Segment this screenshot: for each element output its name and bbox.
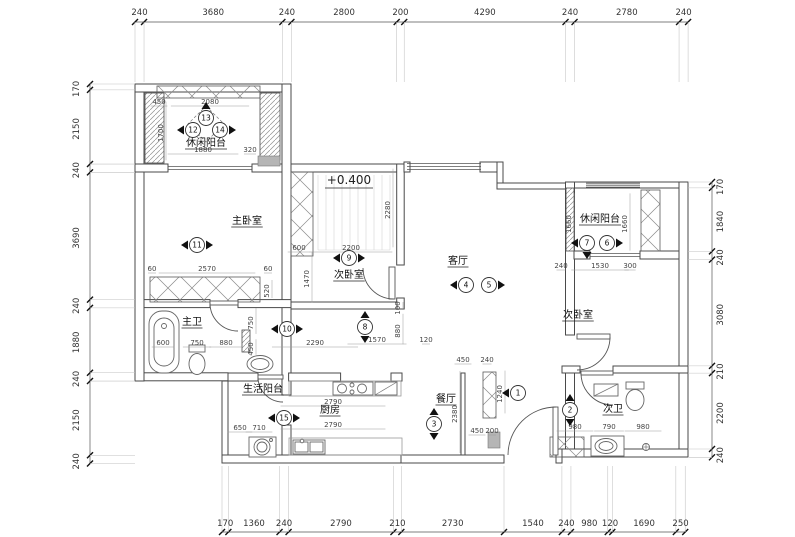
interior-dim-label: 790: [602, 423, 615, 431]
burner: [338, 384, 347, 393]
interior-dim-label: 750: [247, 316, 255, 329]
wardrobe: [150, 277, 260, 302]
wall-segment: [401, 455, 504, 463]
interior-dim-label: 750: [190, 339, 203, 347]
wall-segment: [222, 381, 228, 455]
interior-dim-label: 650: [233, 424, 246, 432]
floor-plan-canvas: 2403680240280020042902402780240170136024…: [0, 0, 795, 537]
vanity-sink-inner: [599, 442, 613, 451]
marker-arrow-left: [177, 126, 184, 135]
dimension-label: 170: [72, 81, 82, 97]
marker-number: 10: [282, 325, 292, 334]
wall-segment: [135, 164, 168, 172]
room-label: 生活阳台: [243, 382, 283, 395]
bathtub-drain: [162, 324, 167, 329]
wall-segment: [613, 366, 688, 373]
balcony-cabinet: [157, 86, 260, 98]
interior-dim-label: 1470: [303, 270, 311, 288]
elevation-note: +0.400: [327, 173, 371, 187]
wall-segment: [144, 373, 228, 381]
interior-dim-label: 1530: [591, 262, 609, 270]
interior-dim-label: 240: [480, 356, 493, 364]
dimension-label: 240: [562, 8, 578, 18]
room-label: 次卫: [603, 402, 623, 415]
washer-knob: [270, 439, 273, 442]
marker-number: 1: [516, 389, 521, 398]
burner: [350, 390, 354, 394]
dimension-label: 240: [716, 249, 726, 265]
marker-arrow-up: [361, 311, 370, 318]
marker-arrow-up: [430, 408, 439, 415]
dimension-label: 250: [672, 519, 688, 529]
door-arc: [210, 303, 238, 331]
door-leaf: [389, 267, 395, 299]
interior-dim-label: 2290: [306, 339, 324, 347]
wall-segment: [282, 84, 291, 395]
dimension-label: 2730: [442, 519, 464, 529]
marker-number: 13: [201, 114, 211, 123]
toilet-bowl: [626, 390, 644, 411]
marker-number: 12: [188, 126, 198, 135]
dimension-label: 980: [581, 519, 597, 529]
wall-segment: [562, 366, 580, 373]
room-label: 餐厅: [436, 392, 456, 405]
dimension-label: 170: [217, 519, 233, 529]
marker-number: 2: [568, 406, 573, 415]
interior-dim-label: 450: [152, 98, 165, 106]
dining-cabinet: [483, 372, 496, 418]
interior-dim-label: 710: [252, 424, 265, 432]
interior-dim-label: 100: [394, 301, 402, 314]
dimension-label: 240: [72, 371, 82, 387]
sink-basin: [310, 442, 323, 452]
dimension-label: 170: [716, 179, 726, 195]
dimension-label: 3680: [202, 8, 224, 18]
marker-number: 11: [192, 241, 202, 250]
room-label: 客厅: [448, 254, 468, 267]
marker-arrow-left: [450, 281, 457, 290]
wall-segment: [291, 164, 397, 172]
marker-arrow-right: [293, 414, 300, 423]
interior-dim-label: 450: [470, 427, 483, 435]
dimension-label: 240: [675, 8, 691, 18]
interior-dim-label: 60: [148, 265, 157, 273]
dimension-label: 240: [279, 8, 295, 18]
dimension-label: 2150: [72, 118, 82, 140]
marker-arrow-right: [358, 254, 365, 263]
dimension-label: 4290: [474, 8, 496, 18]
dimension-label: 3080: [716, 304, 726, 326]
room-label: 主卫: [182, 316, 202, 328]
marker-arrow-left: [271, 325, 278, 334]
dimension-label: 240: [72, 453, 82, 469]
wall-segment: [397, 164, 405, 265]
room-label: 厨房: [320, 403, 340, 416]
marker-arrow-down: [430, 433, 439, 440]
marker-arrow-right: [229, 126, 236, 135]
marker-number: 3: [432, 420, 437, 429]
burner: [358, 384, 367, 393]
dimension-label: 1540: [522, 519, 544, 529]
dimension-label: 2790: [330, 519, 352, 529]
interior-dim-label: 450: [456, 356, 469, 364]
interior-dim-label: 1700: [157, 124, 165, 142]
interior-dim-label: 600: [156, 339, 169, 347]
interior-dim-label: 880: [219, 339, 232, 347]
dimension-label: 3690: [72, 227, 82, 249]
room-label: 次卧室: [563, 308, 593, 321]
interior-dim-label: 2080: [201, 98, 219, 106]
interior-dim-label: 1240: [496, 385, 504, 403]
marker-number: 5: [487, 281, 492, 290]
dimension-label: 210: [389, 519, 405, 529]
dimension-label: 2200: [716, 402, 726, 424]
interior-dim-label: 2570: [198, 265, 216, 273]
marker-arrow-right: [616, 239, 623, 248]
entry-door-arc: [508, 407, 556, 455]
marker-number: 6: [605, 239, 610, 248]
wall-segment: [135, 84, 144, 381]
interior-dim-label: 1570: [368, 336, 386, 344]
door-arc: [577, 337, 610, 370]
room-label: 休闲阳台: [580, 212, 620, 225]
floor-plan-svg: 2403680240280020042902402780240170136024…: [0, 0, 795, 537]
room-label: 主卧室: [232, 214, 262, 227]
interior-dim-label: 2790: [324, 421, 342, 429]
wall-segment: [679, 182, 688, 457]
dimension-label: 240: [131, 8, 147, 18]
wall-segment: [497, 183, 574, 189]
wall-segment: [289, 373, 341, 381]
dimension-label: 1360: [243, 519, 265, 529]
toilet-bowl: [189, 354, 205, 375]
toilet-tank: [626, 382, 644, 389]
dimension-label: 240: [716, 447, 726, 463]
wall-block: [258, 156, 280, 166]
wall-segment: [640, 251, 679, 259]
dimension-label: 240: [558, 519, 574, 529]
bathroom-sink-inner: [251, 359, 269, 370]
marker-number: 9: [347, 254, 352, 263]
interior-dim-label: 2280: [384, 201, 392, 219]
interior-dim-label: 300: [623, 262, 636, 270]
wall-segment: [461, 373, 465, 455]
marker-arrow-left: [333, 254, 340, 263]
interior-dim-label: 2380: [451, 405, 459, 423]
interior-dim-label: 980: [636, 423, 649, 431]
dimension-label: 2150: [72, 409, 82, 431]
interior-dim-label: 1660: [565, 215, 573, 233]
interior-dim-label: 520: [263, 284, 271, 297]
room-label: 次卧室: [334, 268, 364, 281]
marker-number: 15: [279, 414, 289, 423]
marker-number: 8: [363, 323, 368, 332]
dimension-label: 1840: [716, 211, 726, 233]
sink-basin: [295, 442, 308, 452]
interior-dim-label: 200: [485, 427, 498, 435]
marker-arrow-left: [268, 414, 275, 423]
marker-arrow-right: [206, 241, 213, 250]
dimension-label: 120: [602, 519, 618, 529]
marker-arrow-right: [498, 281, 505, 290]
dimension-label: 200: [392, 8, 408, 18]
balcony-cabinet: [641, 190, 660, 251]
interior-dim-label: 320: [243, 146, 256, 154]
faucet: [300, 439, 304, 443]
marker-number: 4: [464, 281, 469, 290]
dimension-label: 1690: [633, 519, 655, 529]
door-leaf: [258, 375, 283, 379]
burner: [350, 383, 354, 387]
interior-dim-label: 120: [419, 336, 432, 344]
interior-dim-label: 600: [292, 244, 305, 252]
dimension-label: 240: [276, 519, 292, 529]
marker-number: 7: [585, 239, 590, 248]
dimension-label: 240: [72, 298, 82, 314]
marker-arrow-left: [181, 241, 188, 250]
wall-segment: [291, 302, 397, 309]
washer-drum-inner: [257, 442, 267, 452]
interior-dim-label: 240: [554, 262, 567, 270]
wall-segment: [391, 373, 402, 381]
dimension-label: 2800: [333, 8, 355, 18]
interior-dim-label: 880: [394, 324, 402, 337]
door-leaf: [210, 301, 238, 305]
wall-segment: [228, 373, 258, 381]
dimension-label: 210: [716, 363, 726, 379]
door-leaf: [581, 371, 613, 375]
marker-arrow-right: [296, 325, 303, 334]
dimension-label: 2780: [616, 8, 638, 18]
hatched-wall: [260, 93, 280, 160]
interior-dim-label: 1660: [621, 215, 629, 233]
marker-number: 14: [215, 126, 225, 135]
dimension-label: 1880: [72, 332, 82, 354]
dimension-label: 240: [72, 162, 82, 178]
interior-dim-label: 450: [247, 342, 255, 355]
interior-dim-label: 60: [264, 265, 273, 273]
door-leaf: [577, 334, 610, 339]
